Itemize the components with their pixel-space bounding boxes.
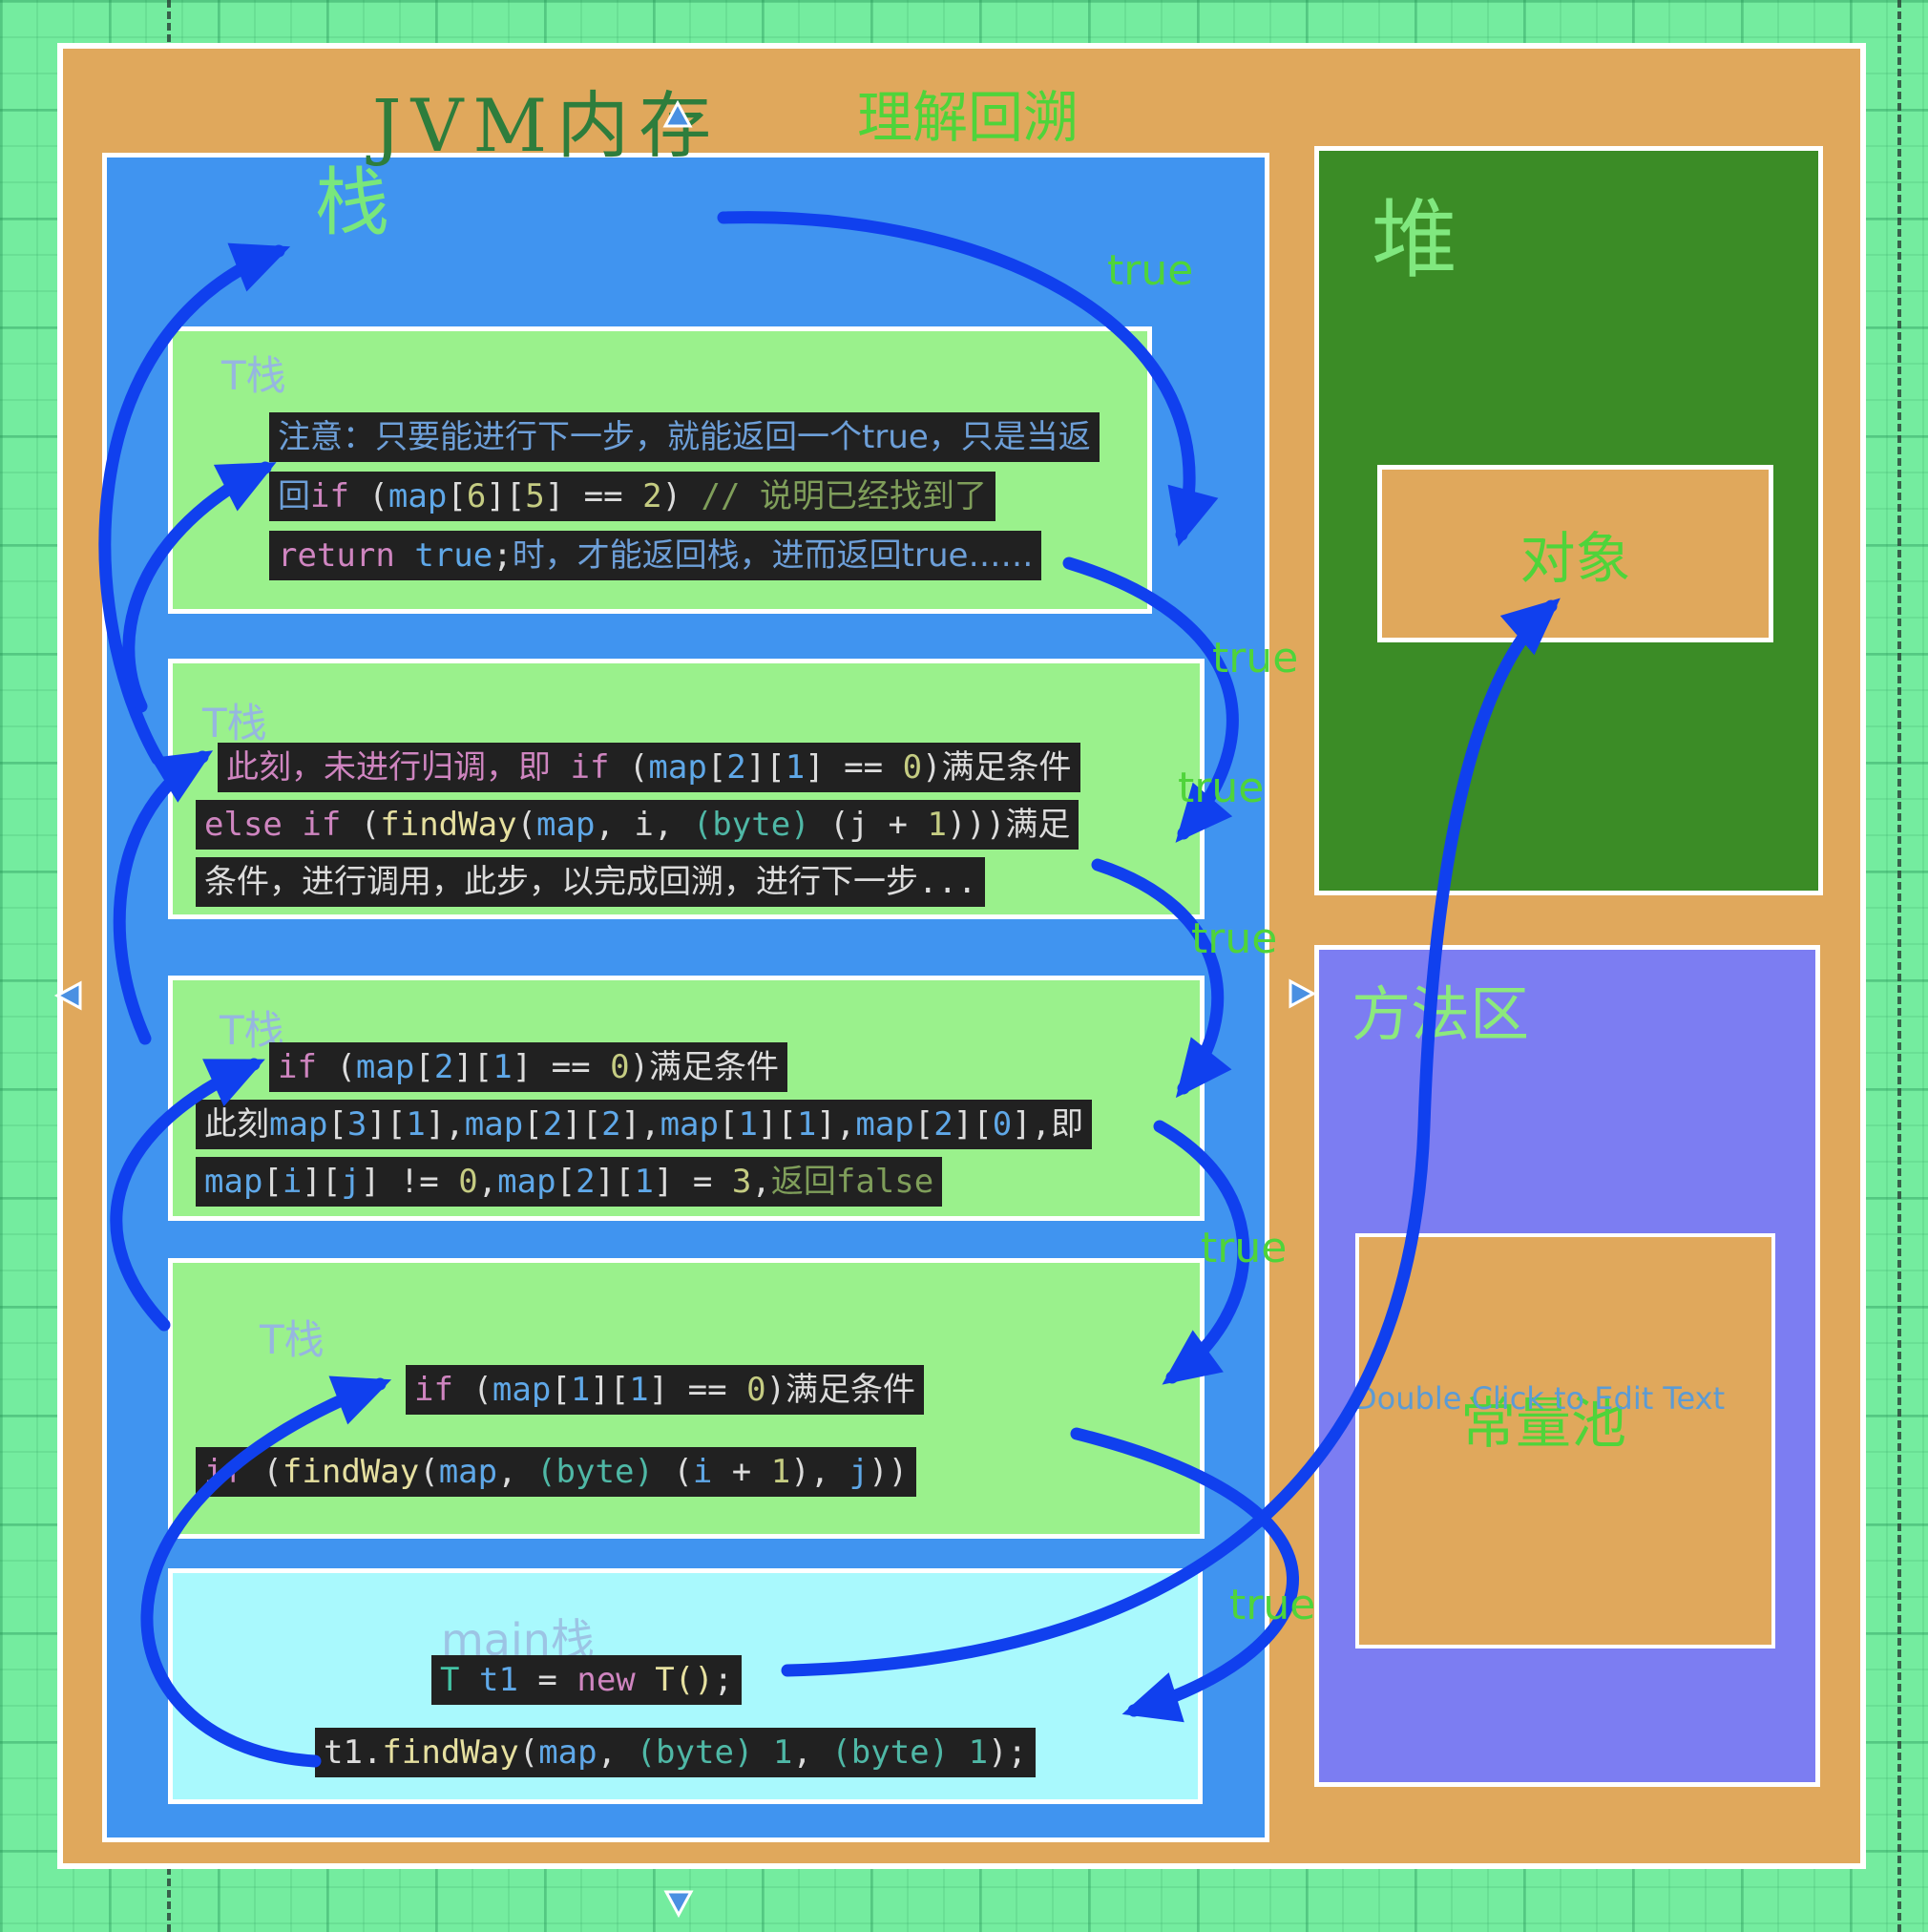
diagram-canvas: { "title": { "main": "JVM内存", "subtitle"… <box>0 0 1928 1932</box>
code-line-backtrack-note[interactable]: 条件，进行调用，此步，以完成回溯，进行下一步... <box>196 857 985 907</box>
code-line-else-if-findway[interactable]: else if (findWay(map, i, (byte) (j + 1))… <box>196 800 1079 850</box>
true-label-5[interactable]: true <box>1201 1224 1287 1272</box>
code-line-return-true[interactable]: return true;时，才能返回栈，进而返回true…… <box>269 531 1041 580</box>
subtitle-understand-backtracking[interactable]: 理解回溯 <box>857 73 1079 153</box>
method-area-label[interactable]: 方法区 <box>1352 966 1529 1052</box>
code-line-return-false[interactable]: map[i][j] != 0,map[2][1] = 3,返回false <box>196 1157 942 1207</box>
heap-object-label: 对象 <box>1519 514 1630 594</box>
code-line-if-map65[interactable]: 回if (map[6][5] == 2) // 说明已经找到了 <box>269 472 995 521</box>
page-guide-right <box>1897 0 1901 1932</box>
true-label-6[interactable]: true <box>1229 1581 1315 1629</box>
code-line-note[interactable]: 注意：只要能进行下一步，就能返回一个true，只是当返 <box>269 412 1100 462</box>
code-line-if-map21[interactable]: if (map[2][1] == 0)满足条件 <box>269 1042 787 1092</box>
code-line-if-findway-i1[interactable]: if (findWay(map, (byte) (i + 1), j)) <box>196 1447 916 1497</box>
code-line-map-states[interactable]: 此刻map[3][1],map[2][2],map[1][1],map[2][0… <box>196 1100 1092 1149</box>
true-label-1[interactable]: true <box>1107 246 1193 295</box>
true-label-2[interactable]: true <box>1212 634 1298 682</box>
code-line-no-recursion-yet[interactable]: 此刻，未进行归调，即 if (map[2][1] == 0)满足条件 <box>218 743 1080 792</box>
t-stack-frame-1-label[interactable]: T栈 <box>221 344 286 402</box>
true-label-4[interactable]: true <box>1191 914 1277 963</box>
handle-bottom-icon[interactable] <box>666 1892 691 1915</box>
stack-label[interactable]: 栈 <box>315 143 389 250</box>
true-label-3[interactable]: true <box>1178 764 1264 812</box>
heap-label[interactable]: 堆 <box>1372 170 1457 294</box>
t-stack-frame-4-label[interactable]: T栈 <box>260 1308 325 1366</box>
t-stack-frame-2-label[interactable]: T栈 <box>202 691 267 749</box>
code-line-new-t[interactable]: T t1 = new T(); <box>431 1655 742 1705</box>
edit-text-placeholder[interactable]: Double Click to Edit Text <box>1353 1380 1725 1417</box>
code-line-if-map11[interactable]: if (map[1][1] == 0)满足条件 <box>406 1365 924 1415</box>
code-line-t1-findway[interactable]: t1.findWay(map, (byte) 1, (byte) 1); <box>315 1728 1036 1777</box>
heap-object-box[interactable]: 对象 <box>1377 465 1773 642</box>
page-title[interactable]: JVM内存 <box>372 67 721 172</box>
